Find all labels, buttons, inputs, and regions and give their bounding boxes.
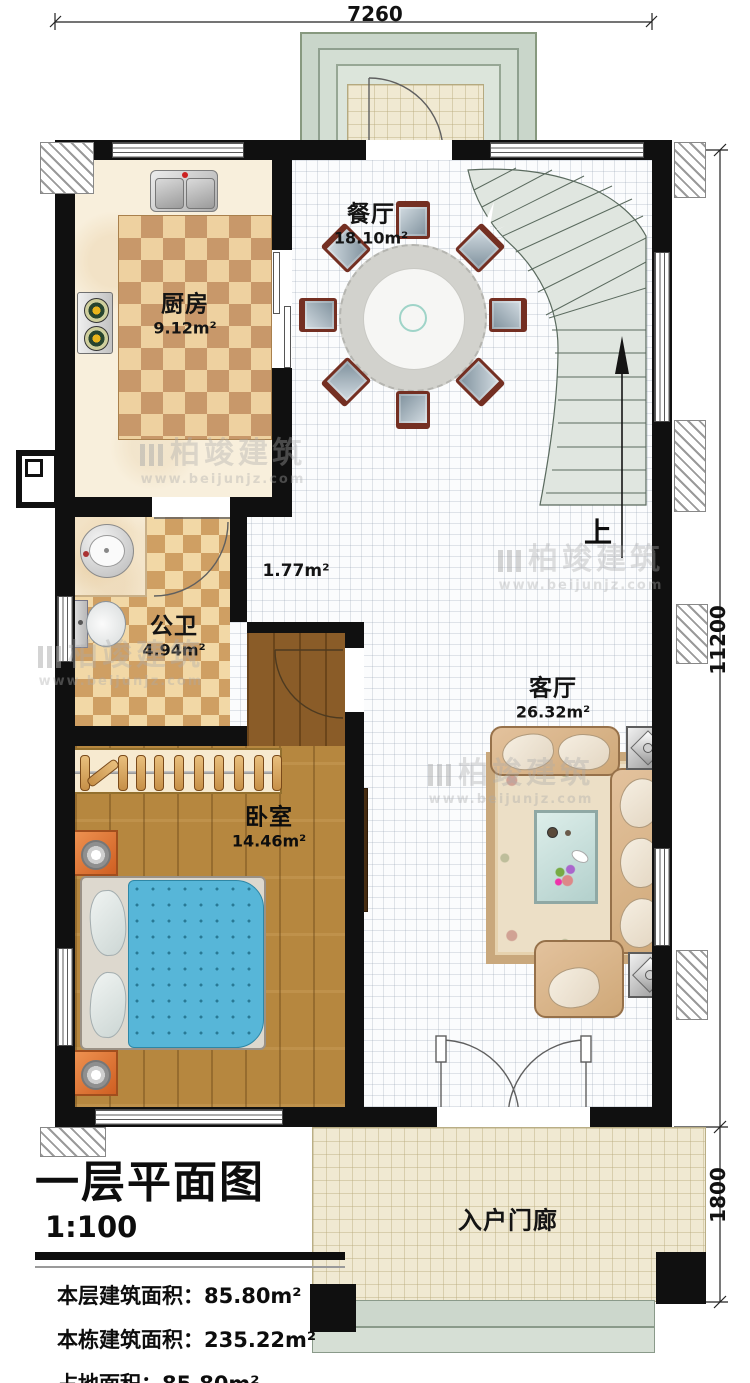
stat-row: 本层建筑面积：85.80m² xyxy=(57,1280,345,1310)
bathroom-door-opening xyxy=(152,497,230,517)
plan-scale: 1:100 xyxy=(45,1210,137,1244)
faucet-icon xyxy=(182,172,188,178)
stat-row: 本栋建筑面积：235.22m² xyxy=(57,1324,345,1354)
title-rule-thick xyxy=(35,1252,345,1260)
hatch-stub xyxy=(676,604,708,664)
flue-duct xyxy=(16,450,60,508)
dining-chair xyxy=(396,391,430,429)
bedroom-vestibule-floor xyxy=(247,633,345,746)
bathroom-basin xyxy=(80,524,134,578)
dining-chair xyxy=(299,298,337,332)
toilet xyxy=(70,598,124,650)
window-bathroom-left xyxy=(57,596,73,662)
quilt xyxy=(128,880,264,1048)
kitchen-sliding-door xyxy=(284,306,291,368)
label-kitchen: 厨房 9.12m² xyxy=(153,285,216,338)
label-porch: 入户门廊 xyxy=(458,1201,558,1236)
sofa-two-seat xyxy=(490,726,620,776)
porch-step xyxy=(312,1300,655,1327)
rear-porch-tile xyxy=(347,84,484,142)
hatch-stub xyxy=(40,142,94,194)
nightstand xyxy=(70,830,118,876)
bed xyxy=(80,876,266,1050)
wall-vestibule-top xyxy=(247,622,364,633)
basin-tap-icon xyxy=(83,551,89,557)
wall-bedroom-living xyxy=(345,712,364,1107)
window-stairs-top xyxy=(490,142,644,158)
plan-title: 一层平面图 xyxy=(35,1157,265,1208)
nightstand xyxy=(70,1050,118,1096)
wall-bathroom-right xyxy=(230,517,247,622)
kitchen-stove xyxy=(77,292,113,354)
hatch-stub xyxy=(674,142,706,198)
window-bedroom-left xyxy=(57,948,73,1046)
porch-step xyxy=(312,1327,655,1353)
wall-bathroom-bedroom xyxy=(55,726,247,746)
window-bedroom-bottom xyxy=(95,1109,283,1125)
armchair xyxy=(534,940,624,1018)
label-bedroom: 卧室 14.46m² xyxy=(232,798,306,851)
window-kitchen-top xyxy=(112,142,244,158)
dimension-top: 7260 xyxy=(347,2,403,26)
title-block: 一层平面图 1:100 本层建筑面积：85.80m² 本栋建筑面积：235.22… xyxy=(35,1146,345,1383)
label-bathroom: 公卫 4.94m² xyxy=(142,607,205,660)
title-rule-thin xyxy=(35,1266,345,1268)
floor-plan: 餐厅 18.10m² 厨房 9.12m² 公卫 4.94m² 1.77m² 客厅… xyxy=(0,0,750,1383)
label-dining: 餐厅 18.10m² xyxy=(334,195,408,248)
hatch-stub xyxy=(674,420,706,512)
porch-pillar xyxy=(656,1252,706,1304)
rear-door-opening xyxy=(366,140,452,160)
kitchen-sink xyxy=(150,170,218,212)
dimension-right-upper: 11200 xyxy=(706,605,730,675)
coffee-table xyxy=(534,810,598,904)
pillow xyxy=(88,889,129,957)
stat-row: 占地面积：85.80m² xyxy=(57,1368,345,1383)
entrance-opening xyxy=(437,1107,590,1127)
table-flowers xyxy=(551,861,581,889)
label-living: 客厅 26.32m² xyxy=(516,669,590,722)
hatch-stub xyxy=(676,950,708,1020)
window-right-upper xyxy=(654,252,670,422)
label-hallway-area: 1.77m² xyxy=(262,561,329,581)
dining-chair xyxy=(489,298,527,332)
label-stairs-up: 上 xyxy=(584,511,612,551)
window-right-lower xyxy=(654,848,670,946)
wall-bedroom-living-upper xyxy=(345,633,364,648)
wardrobe xyxy=(68,748,282,794)
dimension-right-lower: 1800 xyxy=(706,1167,730,1223)
bedroom-door-opening xyxy=(345,648,364,712)
pillow xyxy=(88,971,129,1039)
kitchen-sliding-door xyxy=(273,252,280,314)
